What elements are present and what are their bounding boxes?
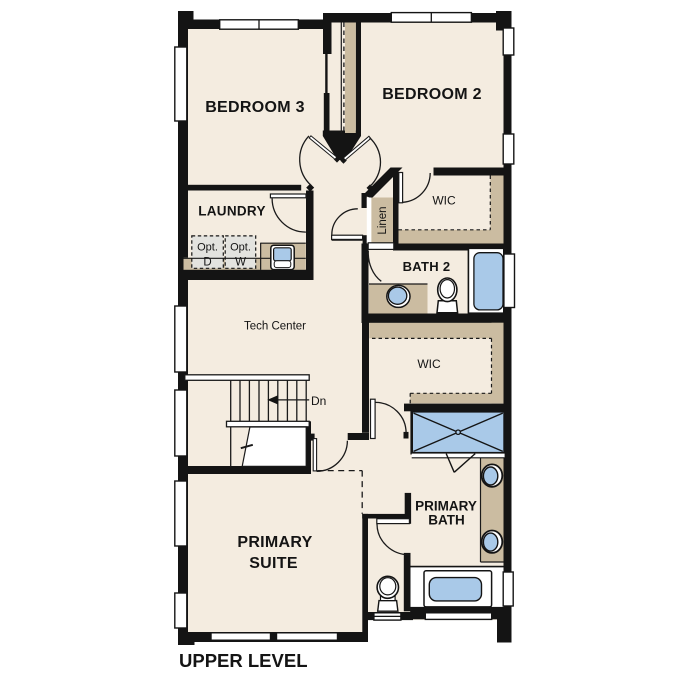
svg-text:BEDROOM 2: BEDROOM 2 [382, 86, 482, 103]
svg-text:BEDROOM 3: BEDROOM 3 [205, 99, 305, 116]
svg-text:D: D [203, 257, 211, 269]
svg-text:W: W [235, 257, 246, 269]
svg-text:Opt.: Opt. [230, 242, 251, 254]
svg-text:BATH 2: BATH 2 [403, 259, 451, 274]
svg-text:Opt.: Opt. [197, 242, 218, 254]
svg-text:PRIMARY: PRIMARY [415, 498, 477, 513]
svg-text:WIC: WIC [417, 357, 441, 371]
svg-text:PRIMARY: PRIMARY [237, 534, 312, 551]
svg-text:Tech Center: Tech Center [244, 321, 306, 333]
svg-text:BATH: BATH [428, 513, 465, 528]
svg-text:WIC: WIC [432, 193, 456, 207]
svg-text:SUITE: SUITE [249, 555, 298, 572]
svg-text:Dn: Dn [311, 394, 326, 408]
svg-text:LAUNDRY: LAUNDRY [198, 204, 266, 219]
svg-text:UPPER LEVEL: UPPER LEVEL [179, 650, 308, 671]
svg-text:Linen: Linen [377, 206, 389, 234]
